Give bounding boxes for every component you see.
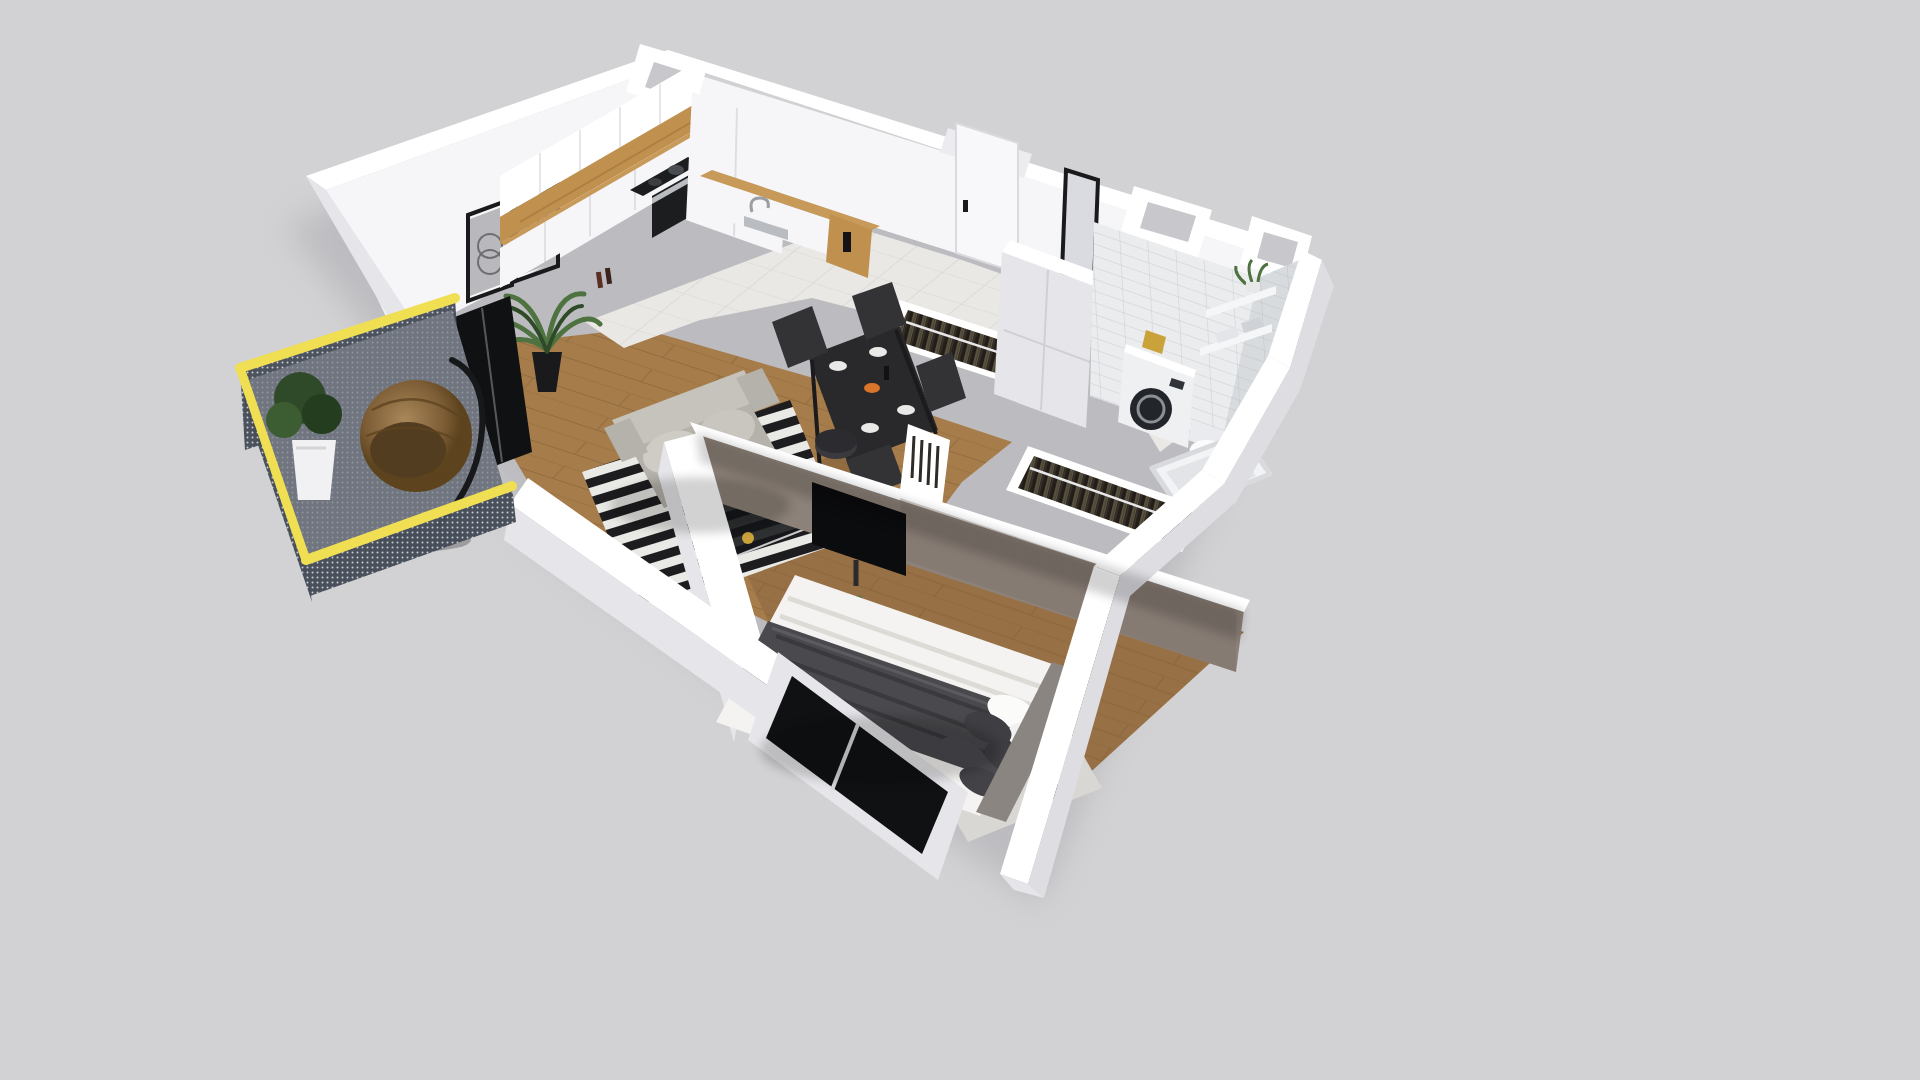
plate-2 — [869, 347, 887, 357]
shrub-2 — [302, 394, 342, 434]
plate-1 — [829, 361, 847, 371]
candle — [742, 532, 754, 544]
fruit-bowl — [864, 383, 880, 393]
plate-4 — [897, 405, 915, 415]
bed-ao — [760, 716, 1000, 784]
burner — [648, 178, 662, 186]
door-handle — [963, 200, 968, 212]
shelf-plant-pot — [1246, 282, 1260, 292]
floorplan-render — [0, 0, 1920, 1080]
sofa-ao — [610, 477, 790, 533]
drum-table-top — [815, 429, 857, 453]
candlestick — [884, 366, 889, 380]
washer-door — [1130, 388, 1172, 430]
tall-wardrobe — [994, 240, 1102, 428]
plate-3 — [861, 423, 879, 433]
pot — [668, 165, 684, 175]
floorplan-canvas — [0, 0, 1920, 1080]
shrub-3 — [266, 402, 302, 438]
niche-vase — [843, 232, 851, 252]
